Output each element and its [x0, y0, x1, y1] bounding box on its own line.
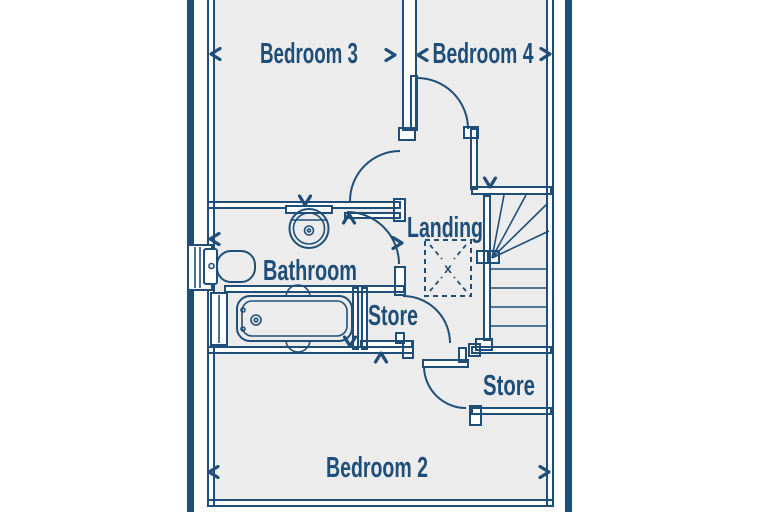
room-label-store-middle: Store	[368, 300, 418, 332]
loft-hatch-mark: x	[444, 260, 452, 276]
right-edge-band	[565, 0, 572, 512]
room-label-bedroom-4: Bedroom 4	[433, 38, 534, 70]
floorplan-image: x Bedroom 3 Bedroom 4 Landing Bathroom S…	[0, 0, 760, 512]
room-label-store-lower: Store	[483, 370, 535, 402]
toilet-bowl	[217, 251, 255, 282]
room-label-landing: Landing	[407, 212, 483, 244]
toilet-icon	[204, 249, 255, 284]
toilet-cistern	[204, 249, 217, 284]
floorplan-svg: x Bedroom 3 Bedroom 4 Landing Bathroom S…	[0, 0, 760, 512]
room-label-bedroom-2: Bedroom 2	[326, 452, 428, 484]
room-label-bedroom-3: Bedroom 3	[260, 38, 358, 70]
room-label-bathroom: Bathroom	[263, 255, 357, 287]
